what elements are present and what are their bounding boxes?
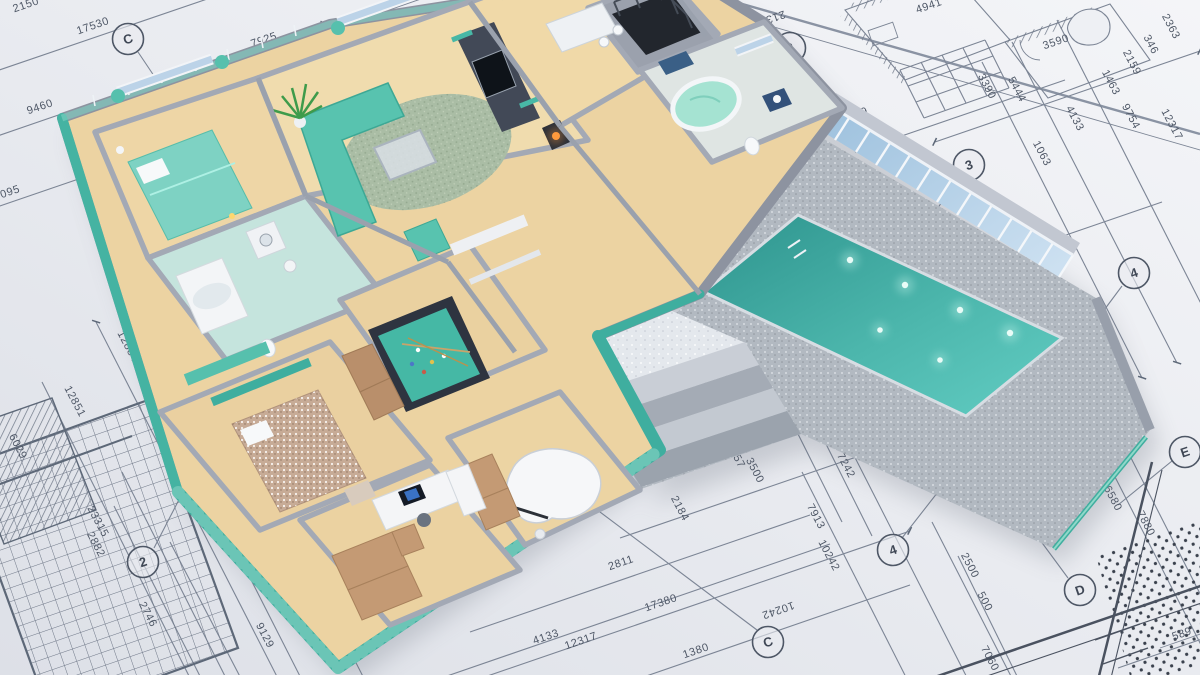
washer-door — [260, 234, 272, 246]
bar-stool — [613, 25, 623, 35]
grid-axis-marker: C — [753, 627, 784, 658]
grid-axis-marker: 2 — [128, 547, 159, 578]
grid-axis-marker: C — [113, 24, 144, 55]
grid-axis-marker: D — [1065, 575, 1096, 606]
nightstand — [116, 146, 124, 154]
scene-svg: Cutaway 3D model of an apartment with in… — [0, 0, 1200, 675]
piano-bench — [535, 529, 545, 539]
grid-axis-marker: 4 — [1119, 258, 1150, 289]
sink — [773, 95, 781, 103]
bedside-lamp — [229, 213, 235, 219]
desk-chair — [417, 513, 431, 527]
grid-axis-marker: E — [1170, 437, 1200, 468]
blueprint-scene: Cutaway 3D model of an apartment with in… — [0, 0, 1200, 675]
curtain — [215, 55, 229, 69]
curtain — [111, 89, 125, 103]
bar-stool — [599, 37, 609, 47]
grid-axis-marker: 4 — [878, 535, 909, 566]
curtain — [331, 21, 345, 35]
sink — [284, 260, 296, 272]
